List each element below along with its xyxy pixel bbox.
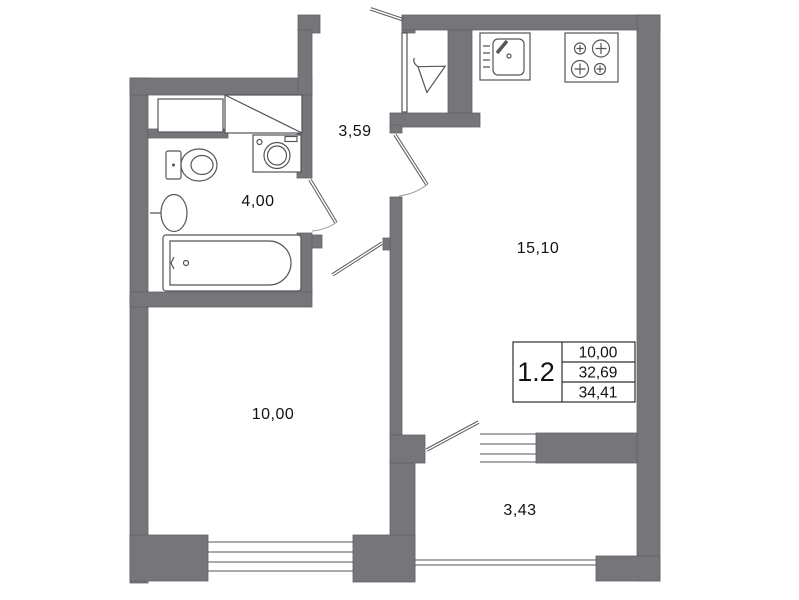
- toilet-icon: [166, 149, 217, 181]
- total-area-value: 34,41: [579, 385, 618, 402]
- balcony-window-band: [480, 434, 536, 462]
- entry-door-leaf: [370, 8, 404, 21]
- bathroom-door: [309, 179, 337, 231]
- kitchen-sink-icon: [480, 33, 530, 80]
- washbasin-icon: [150, 195, 187, 232]
- wall-bathroom-bottom: [130, 292, 312, 307]
- wall-bathroom-top: [130, 78, 312, 95]
- bathtub-icon: [163, 235, 301, 291]
- floor-plan-svg: 3,59 4,00 15,10 10,00 3,43 1.2 10,00 32,…: [0, 0, 799, 600]
- closet-partition: [402, 33, 407, 112]
- stove-icon: [565, 33, 618, 82]
- wall-bathroom-corner-jamb: [312, 235, 322, 248]
- apartment-number: 1.2: [517, 357, 555, 387]
- wall-balconydoor-left-block: [390, 435, 425, 463]
- living-area-value: 10,00: [579, 345, 618, 362]
- living-room-door: [394, 134, 428, 196]
- kitchen-living-area-label: 15,10: [517, 240, 560, 257]
- hall-closet: [402, 33, 445, 112]
- bedroom-door-leaf: [332, 242, 383, 276]
- kitchen-fixtures: [480, 33, 618, 82]
- wall-outer-left: [130, 78, 148, 583]
- washing-machine-icon: [253, 135, 301, 172]
- wall-hall-bottom: [390, 113, 480, 127]
- balcony-door-leaf: [426, 421, 479, 451]
- hallway-area-label: 3,59: [338, 123, 371, 140]
- wall-bottom-mid-pier: [353, 535, 415, 582]
- cabinet-icon: [158, 99, 223, 132]
- apartment-info-table: 1.2 10,00 32,69 34,41: [513, 342, 635, 402]
- wall-outer-right: [637, 15, 660, 581]
- wall-closet-right: [448, 30, 472, 113]
- wall-interior-vertical: [390, 197, 402, 435]
- shaft-box-icon: [225, 95, 302, 133]
- bathroom-fixtures: [150, 95, 302, 291]
- bedroom-window: [208, 542, 353, 571]
- wall-balcony-bottom-right-pier: [596, 556, 660, 581]
- floor-plan-page: 3,59 4,00 15,10 10,00 3,43 1.2 10,00 32,…: [0, 0, 799, 600]
- wall-livingdoor-top-jamb: [390, 125, 402, 133]
- wall-vestibule-left: [298, 30, 312, 95]
- apartment-area-value: 32,69: [579, 365, 618, 382]
- bathroom-area-label: 4,00: [241, 193, 274, 210]
- bedroom-area-label: 10,00: [252, 406, 295, 423]
- wall-outer-top: [402, 15, 660, 30]
- wall-bottom-left-pier: [130, 535, 208, 581]
- hanger-icon: [402, 49, 445, 92]
- wall-room-door-jamb: [383, 238, 390, 250]
- balcony-area-label: 3,43: [503, 502, 536, 519]
- wall-balcony-top-right: [536, 433, 637, 463]
- balcony-glazing: [415, 560, 596, 565]
